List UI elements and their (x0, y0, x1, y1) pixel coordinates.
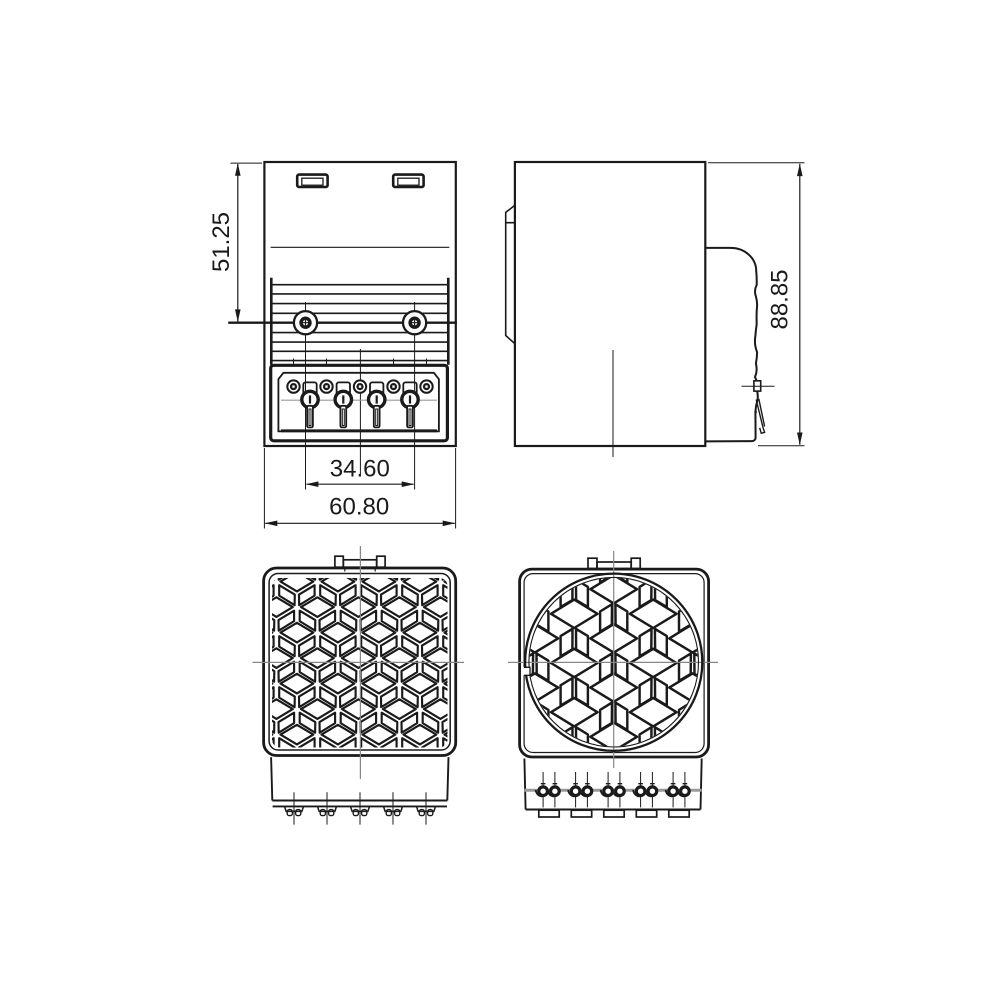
svg-text:51.25: 51.25 (208, 212, 235, 272)
svg-text:60.80: 60.80 (329, 494, 389, 521)
svg-text:34.60: 34.60 (330, 456, 390, 483)
svg-text:88.85: 88.85 (767, 269, 794, 329)
